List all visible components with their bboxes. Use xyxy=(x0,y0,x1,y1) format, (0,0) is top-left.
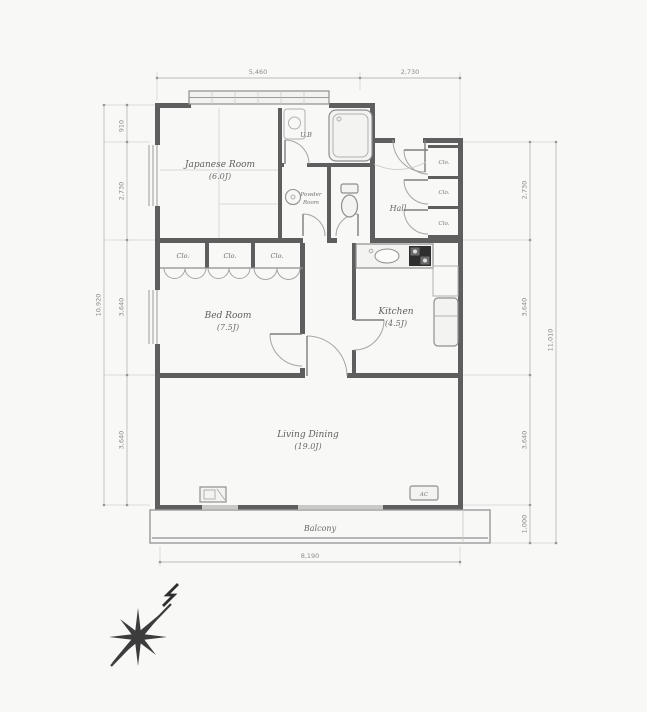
dim-right-2: 3,640 xyxy=(521,298,529,317)
kitchen-label: Kitchen xyxy=(377,307,413,317)
entry-step-line xyxy=(374,162,426,170)
kitchen-door xyxy=(354,320,384,350)
dim-left-2: 2,730 xyxy=(118,182,126,201)
wall-segment xyxy=(347,373,463,378)
closet-divider xyxy=(205,243,209,268)
powder-basin xyxy=(286,190,301,205)
stove-icon xyxy=(409,246,431,266)
closet-folding-doors xyxy=(164,268,300,280)
dim-left-4: 3,640 xyxy=(118,431,126,450)
wall-segment xyxy=(155,206,160,290)
hall-closet-shelf xyxy=(428,235,458,238)
dim-left-total: 10,920 xyxy=(95,294,103,317)
floor-plan-drawing: 5,460 2,730 8,190 910 2,730 3,640 3,640 … xyxy=(0,0,647,712)
japanese-room-window xyxy=(149,145,157,206)
compass-star xyxy=(109,608,167,666)
hall-closet-label-1: Clo. xyxy=(439,160,450,166)
wall-segment xyxy=(155,344,160,510)
hall-closet-shelf xyxy=(428,176,458,179)
closet-label-2: Clo. xyxy=(224,252,237,260)
dim-left-1: 910 xyxy=(118,120,126,132)
floor-plan-page: 5,460 2,730 8,190 910 2,730 3,640 3,640 … xyxy=(0,0,647,712)
hall-closet-label-3: Clo. xyxy=(439,221,450,227)
powder-room-label-2: Room xyxy=(302,200,319,206)
wall-segment xyxy=(155,505,202,510)
hall-closet-shelf xyxy=(428,145,458,148)
wall-segment xyxy=(238,505,298,510)
powder-room-door xyxy=(303,214,325,236)
bedroom-size: (7.5J) xyxy=(217,323,239,332)
wall-segment xyxy=(375,138,395,143)
hall-closet-shelf xyxy=(428,206,458,209)
wall-segment xyxy=(300,243,305,334)
wall-segment xyxy=(327,167,331,238)
wall-segment xyxy=(329,103,375,108)
bedroom-window xyxy=(149,290,157,344)
kitchen-size: (4.5J) xyxy=(385,319,407,328)
dim-right-3: 3,640 xyxy=(521,431,529,450)
wall-segment xyxy=(423,138,463,143)
tv-board xyxy=(200,487,226,502)
balcony-label: Balcony xyxy=(303,524,337,533)
wall-segment xyxy=(352,243,356,320)
hall-label: Hall xyxy=(389,204,407,213)
powder-room-label-1: Powder xyxy=(300,192,322,198)
living-dining-label: Living Dining xyxy=(276,430,339,440)
closet-label-1: Clo. xyxy=(177,252,190,260)
living-dining-size: (19.0J) xyxy=(294,442,321,451)
dim-right-total: 11,010 xyxy=(547,329,555,352)
wall-segment xyxy=(155,103,160,145)
wall-segment xyxy=(458,138,463,510)
bay-window xyxy=(189,91,329,104)
wall-segment xyxy=(327,238,337,243)
closet-label-3: Clo. xyxy=(271,252,284,260)
dim-left-3: 3,640 xyxy=(118,298,126,317)
dim-top-left: 5,460 xyxy=(249,68,268,76)
bathtub xyxy=(329,110,372,161)
compass-rose xyxy=(109,584,178,666)
ac-label: AC xyxy=(419,492,429,498)
living-door xyxy=(307,336,347,376)
japanese-room-size: (6.0J) xyxy=(209,172,231,181)
dim-bottom: 8,190 xyxy=(301,552,320,560)
toilet xyxy=(341,184,358,217)
wall-segment xyxy=(278,163,284,167)
wall-segment xyxy=(155,373,305,378)
wall-segment xyxy=(155,103,191,108)
wall-segment xyxy=(278,108,282,238)
entry-door xyxy=(393,140,425,172)
closet-divider xyxy=(251,243,255,268)
wall-segment xyxy=(307,163,374,167)
wall-segment xyxy=(155,238,303,243)
dim-top-right: 2,730 xyxy=(401,68,420,76)
room-labels: Japanese Room (6.0J) Bed Room (7.5J) Kit… xyxy=(177,131,450,533)
wall-segment xyxy=(383,505,463,510)
hall-closet-label-2: Clo. xyxy=(439,190,450,196)
wc-door xyxy=(336,214,358,236)
north-mark-icon xyxy=(163,584,178,606)
dim-right-1: 2,730 xyxy=(521,181,529,200)
bedroom-label: Bed Room xyxy=(204,311,252,321)
japanese-room-label: Japanese Room xyxy=(183,160,255,170)
refrigerator xyxy=(434,298,458,346)
kitchen-side-counter xyxy=(433,266,458,296)
bath-door xyxy=(285,140,309,164)
dim-right-4: 1,000 xyxy=(521,515,529,534)
wall-segment xyxy=(370,238,463,243)
bath-label: U.B xyxy=(300,131,312,139)
bedroom-door xyxy=(270,334,302,366)
